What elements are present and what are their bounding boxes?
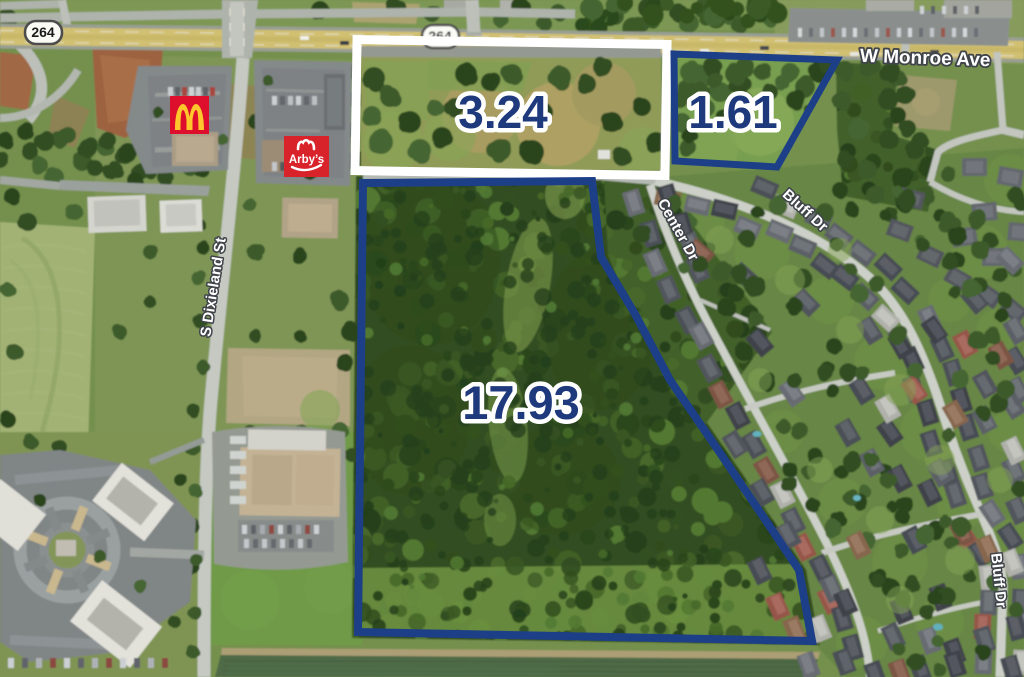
svg-text:Arby’s: Arby’s	[289, 154, 324, 166]
svg-text:1.61: 1.61	[688, 86, 778, 138]
svg-text:264: 264	[31, 24, 55, 40]
svg-text:3.24: 3.24	[458, 86, 548, 138]
svg-text:17.93: 17.93	[462, 376, 580, 429]
